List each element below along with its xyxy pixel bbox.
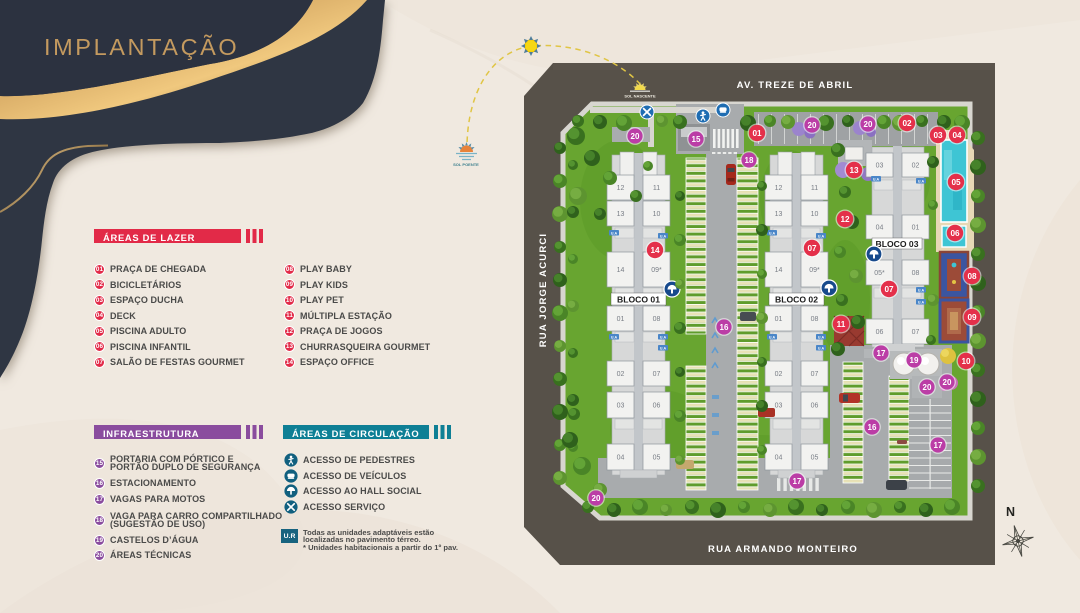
svg-text:U.A: U.A <box>660 346 667 350</box>
svg-text:13: 13 <box>617 211 625 218</box>
svg-text:11: 11 <box>811 185 818 192</box>
svg-text:14: 14 <box>775 267 783 274</box>
svg-text:12: 12 <box>840 215 850 224</box>
svg-text:20: 20 <box>592 494 601 503</box>
svg-text:06: 06 <box>653 403 661 410</box>
svg-text:17: 17 <box>934 441 943 450</box>
svg-text:06: 06 <box>876 329 884 336</box>
svg-text:U.A: U.A <box>918 288 925 292</box>
svg-text:11: 11 <box>837 320 846 329</box>
svg-text:06: 06 <box>811 403 819 410</box>
svg-text:20: 20 <box>943 378 952 387</box>
svg-text:BLOCO 03: BLOCO 03 <box>876 239 919 249</box>
svg-text:03: 03 <box>933 131 943 140</box>
svg-text:17: 17 <box>793 477 802 486</box>
svg-text:16: 16 <box>868 423 877 432</box>
svg-text:01: 01 <box>912 225 920 232</box>
svg-text:07: 07 <box>912 329 920 336</box>
svg-text:U.A: U.A <box>818 335 825 339</box>
svg-text:U.A: U.A <box>611 335 618 339</box>
svg-text:04: 04 <box>952 131 962 140</box>
svg-text:13: 13 <box>849 166 859 175</box>
svg-text:SOL NASCENTE: SOL NASCENTE <box>624 94 656 99</box>
svg-text:U.A: U.A <box>611 231 618 235</box>
svg-text:16: 16 <box>720 323 729 332</box>
svg-text:20: 20 <box>923 383 932 392</box>
svg-text:05: 05 <box>653 455 661 462</box>
svg-text:U.A: U.A <box>918 300 925 304</box>
svg-text:11: 11 <box>653 185 660 192</box>
svg-text:05: 05 <box>811 455 819 462</box>
svg-text:20: 20 <box>864 120 873 129</box>
svg-text:08: 08 <box>912 270 920 277</box>
svg-text:09*: 09* <box>651 267 662 274</box>
svg-text:04: 04 <box>617 455 625 462</box>
svg-text:08: 08 <box>811 316 819 323</box>
svg-text:12: 12 <box>617 185 625 192</box>
svg-text:05*: 05* <box>874 270 885 277</box>
svg-text:03: 03 <box>876 163 884 170</box>
svg-text:18: 18 <box>745 156 754 165</box>
svg-text:U.A: U.A <box>660 234 667 238</box>
svg-text:17: 17 <box>877 349 886 358</box>
svg-text:10: 10 <box>811 211 819 218</box>
svg-text:08: 08 <box>967 272 977 281</box>
svg-text:01: 01 <box>775 316 783 323</box>
svg-text:12: 12 <box>775 185 783 192</box>
svg-text:20: 20 <box>808 121 817 130</box>
svg-text:03: 03 <box>617 403 625 410</box>
svg-text:03: 03 <box>775 403 783 410</box>
svg-text:U.A: U.A <box>769 335 776 339</box>
svg-text:07: 07 <box>807 244 817 253</box>
svg-text:U.A: U.A <box>660 335 667 339</box>
svg-text:AV. TREZE DE ABRIL: AV. TREZE DE ABRIL <box>737 80 854 91</box>
svg-text:U.A: U.A <box>818 234 825 238</box>
svg-text:02: 02 <box>912 163 920 170</box>
svg-text:U.A: U.A <box>818 346 825 350</box>
svg-text:BLOCO 01: BLOCO 01 <box>617 295 660 305</box>
svg-text:15: 15 <box>692 135 701 144</box>
svg-text:07: 07 <box>811 371 819 378</box>
svg-text:09*: 09* <box>809 267 820 274</box>
svg-text:RUA JORGE ACURCI: RUA JORGE ACURCI <box>538 233 549 348</box>
svg-text:10: 10 <box>653 211 661 218</box>
svg-text:14: 14 <box>650 246 660 255</box>
svg-text:05: 05 <box>951 178 961 187</box>
svg-text:20: 20 <box>631 132 640 141</box>
svg-text:U.A: U.A <box>769 231 776 235</box>
svg-text:07: 07 <box>884 285 894 294</box>
svg-text:BLOCO 02: BLOCO 02 <box>775 295 818 305</box>
svg-text:U.A: U.A <box>873 177 880 181</box>
svg-text:02: 02 <box>617 371 625 378</box>
svg-text:14: 14 <box>617 267 625 274</box>
svg-text:08: 08 <box>653 316 661 323</box>
svg-text:SOL POENTE: SOL POENTE <box>453 162 479 167</box>
svg-text:N: N <box>1006 505 1015 519</box>
svg-text:06: 06 <box>950 229 960 238</box>
svg-text:02: 02 <box>775 371 783 378</box>
svg-text:04: 04 <box>876 225 884 232</box>
svg-text:02: 02 <box>902 119 912 128</box>
svg-text:U.A: U.A <box>918 179 925 183</box>
svg-text:01: 01 <box>617 316 625 323</box>
svg-text:07: 07 <box>653 371 661 378</box>
svg-text:10: 10 <box>961 357 971 366</box>
svg-text:19: 19 <box>910 356 919 365</box>
svg-text:13: 13 <box>775 211 783 218</box>
svg-text:RUA ARMANDO MONTEIRO: RUA ARMANDO MONTEIRO <box>708 544 858 555</box>
svg-text:09: 09 <box>967 313 977 322</box>
svg-text:04: 04 <box>775 455 783 462</box>
svg-text:01: 01 <box>752 129 762 138</box>
